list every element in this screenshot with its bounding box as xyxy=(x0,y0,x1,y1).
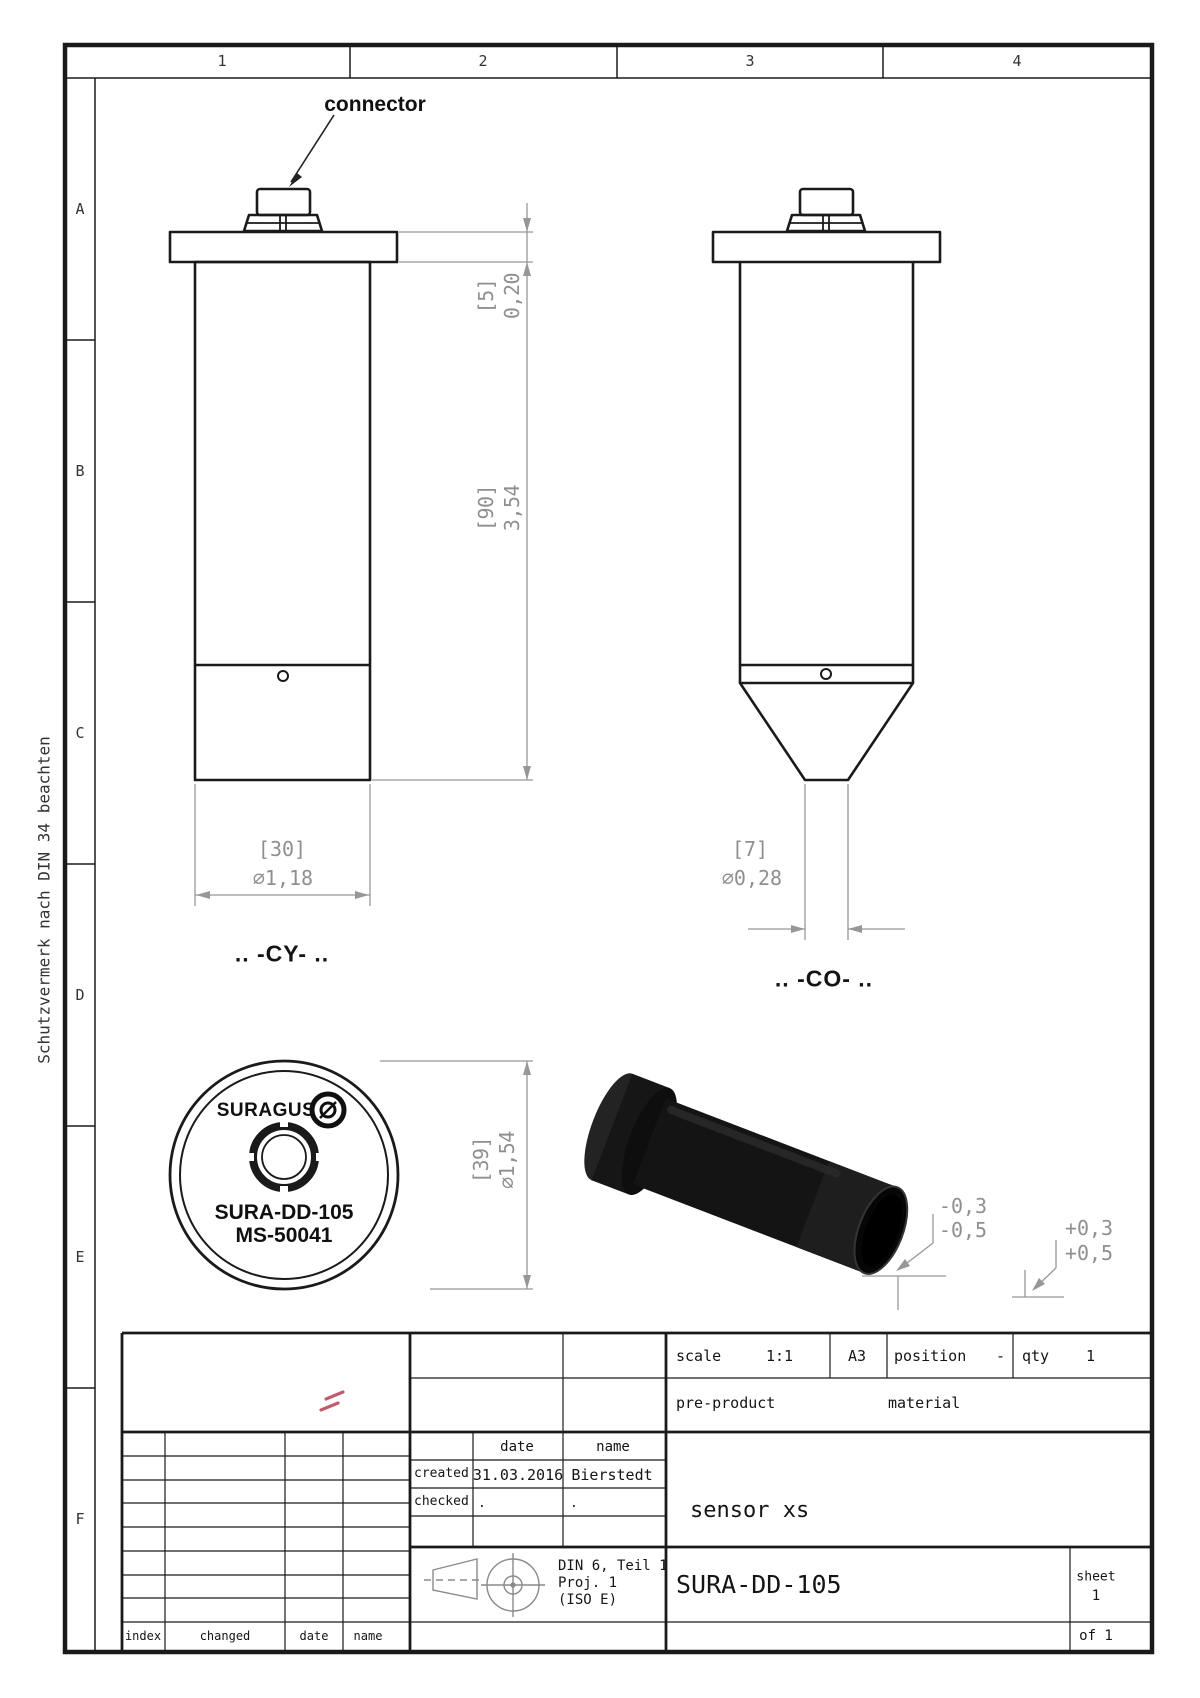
grid-row-label: A xyxy=(75,200,84,218)
connector-leader xyxy=(291,115,334,182)
position-value: - xyxy=(996,1347,1005,1365)
protection-note: Schutzvermerk nach DIN 34 beachten xyxy=(35,736,54,1064)
dim-tip-diameter-bracket: [7] xyxy=(732,837,768,861)
drawing-sheet: 1 2 3 4 A B C D E F Schutzvermerk nach D… xyxy=(0,0,1200,1698)
tolerance-minus-upper: -0,3 xyxy=(939,1194,987,1218)
position-label: position xyxy=(894,1347,966,1365)
rev-header-name: name xyxy=(354,1629,383,1643)
dim-flange-height: [5] 0,20 xyxy=(473,273,525,319)
part-number: SURA-DD-105 xyxy=(676,1570,842,1599)
sheet-label: sheet xyxy=(1076,1570,1115,1585)
projection-symbol-icon xyxy=(424,1553,545,1617)
face-model-text: SURA-DD-105 xyxy=(215,1201,354,1225)
signature-mark xyxy=(321,1392,343,1410)
grid-row-label: D xyxy=(75,986,84,1004)
cy-view-outline xyxy=(170,189,397,780)
material-label: material xyxy=(888,1394,960,1412)
grid-col-label: 4 xyxy=(1012,52,1021,70)
connector-label: connector xyxy=(324,93,426,117)
preproduct-label: pre-product xyxy=(676,1394,775,1412)
titleblock-thin-lines xyxy=(122,1333,1150,1650)
tolerance-minus-lower: -0,5 xyxy=(939,1218,987,1242)
qty-value: 1 xyxy=(1086,1347,1095,1365)
grid-row-label: E xyxy=(75,1248,84,1266)
scale-label: scale xyxy=(676,1347,721,1365)
date-column-header: date xyxy=(500,1439,534,1455)
tolerance-plus-lower: +0,5 xyxy=(1065,1241,1113,1265)
grid-row-label: C xyxy=(75,724,84,742)
checked-date: . xyxy=(478,1496,486,1511)
checked-name: . xyxy=(570,1496,578,1511)
grid-col-label: 2 xyxy=(478,52,487,70)
part-name: sensor xs xyxy=(690,1498,809,1523)
grid-col-label: 1 xyxy=(217,52,226,70)
checked-label: checked xyxy=(414,1494,469,1509)
dim-body-diameter-bracket: [30] xyxy=(258,837,306,861)
created-name: Bierstedt xyxy=(571,1466,652,1484)
din-standard-line1: DIN 6, Teil 1 xyxy=(558,1558,668,1574)
grid-col-label: 3 xyxy=(745,52,754,70)
din-standard-line2: Proj. 1 xyxy=(558,1575,617,1591)
dim-body-diameter-value: ⌀1,18 xyxy=(253,866,313,890)
dim-face-diameter: [39] ⌀1,54 xyxy=(468,1131,520,1189)
grid-row-label: F xyxy=(75,1510,84,1528)
rev-header-index: index xyxy=(125,1629,161,1643)
created-label: created xyxy=(414,1466,469,1481)
grid-row-label: B xyxy=(75,462,84,480)
rev-header-date: date xyxy=(300,1629,329,1643)
din-standard-line3: (ISO E) xyxy=(558,1592,617,1608)
sheet-number: 1 xyxy=(1092,1588,1100,1604)
face-serial-text: MS-50041 xyxy=(236,1224,333,1248)
dim-tip-diameter-value: ⌀0,28 xyxy=(722,866,782,890)
co-variant-label: .. -CO- .. xyxy=(775,966,873,993)
titleblock-thick-lines xyxy=(122,1333,1150,1650)
cy-variant-label: .. -CY- .. xyxy=(235,941,329,968)
tolerance-plus-upper: +0,3 xyxy=(1065,1216,1113,1240)
name-column-header: name xyxy=(596,1439,630,1455)
face-brand-text: SURAGUS xyxy=(217,1100,316,1122)
sensor-3d-render xyxy=(573,1067,922,1292)
rev-header-changed: changed xyxy=(200,1629,251,1643)
suragus-logo-icon xyxy=(312,1094,344,1126)
sheet-frame xyxy=(65,45,1152,1652)
dim-body-length: [90] 3,54 xyxy=(473,485,525,531)
created-date: 31.03.2016 xyxy=(473,1466,563,1484)
qty-label: qty xyxy=(1022,1347,1049,1365)
face-view-outline xyxy=(170,1061,398,1289)
sheet-of-label: of 1 xyxy=(1079,1628,1113,1644)
co-view-outline xyxy=(713,189,940,780)
scale-value: 1:1 xyxy=(766,1347,793,1365)
format-value: A3 xyxy=(848,1347,866,1365)
